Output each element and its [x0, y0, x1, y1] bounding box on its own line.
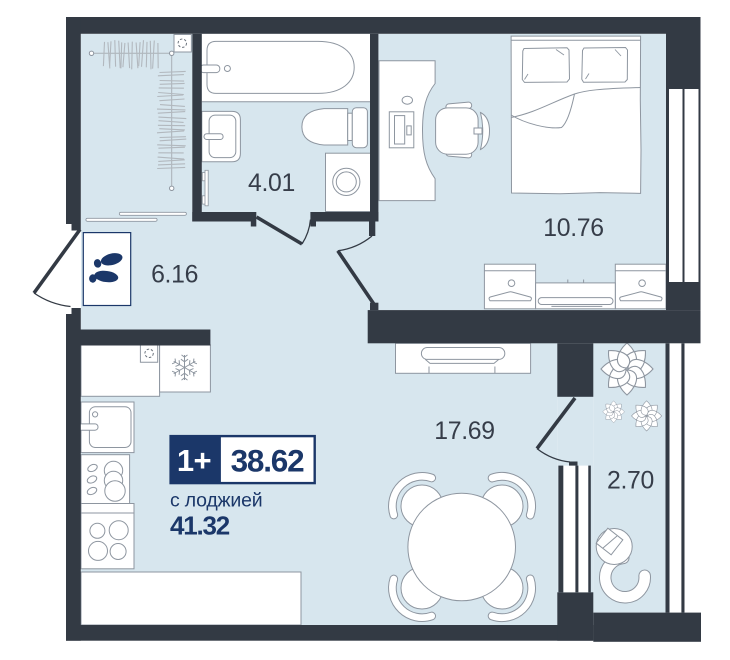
svg-text:2.70: 2.70 [607, 468, 654, 495]
svg-text:41.32: 41.32 [170, 511, 230, 541]
svg-text:6.16: 6.16 [151, 261, 198, 288]
svg-text:1+: 1+ [177, 443, 211, 478]
svg-text:38.62: 38.62 [231, 442, 305, 478]
svg-text:17.69: 17.69 [434, 418, 495, 445]
svg-text:4.01: 4.01 [248, 170, 295, 197]
svg-text:10.76: 10.76 [543, 215, 604, 242]
svg-text:с лоджией: с лоджией [170, 489, 262, 511]
